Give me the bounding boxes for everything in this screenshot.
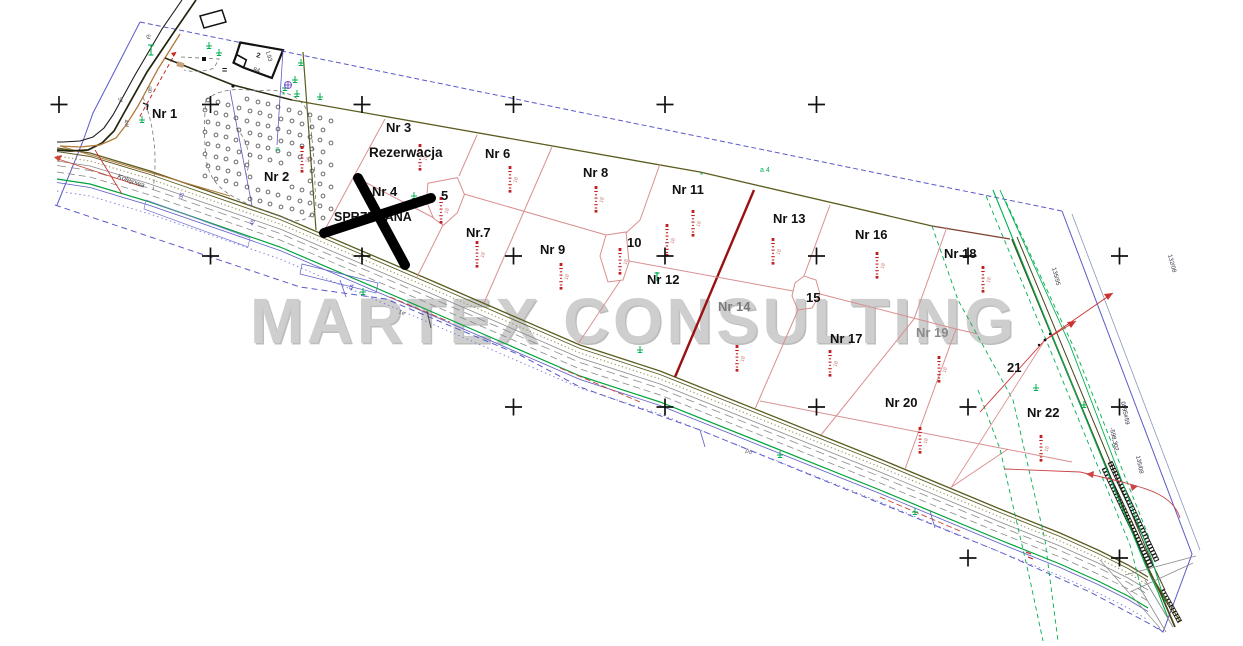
svg-text:Nr 20: Nr 20	[885, 395, 918, 410]
svg-text:15: 15	[806, 290, 820, 305]
svg-text:Nr 12: Nr 12	[647, 272, 680, 287]
svg-text:Nr 14: Nr 14	[718, 299, 751, 314]
svg-text:*: *	[282, 91, 285, 100]
svg-text:Rezerwacja: Rezerwacja	[369, 145, 443, 160]
svg-text:Nr 8: Nr 8	[583, 165, 608, 180]
svg-text:Nr 6: Nr 6	[485, 146, 510, 161]
svg-text:=: =	[222, 65, 227, 75]
svg-text:Nr 4: Nr 4	[372, 184, 398, 199]
svg-text:Nr 2: Nr 2	[264, 169, 289, 184]
svg-text:Nr 13: Nr 13	[773, 211, 806, 226]
svg-text:Nr 19: Nr 19	[916, 325, 949, 340]
svg-text:Nr 18: Nr 18	[944, 246, 977, 261]
svg-text:a 4: a 4	[760, 167, 770, 174]
svg-text:Nr 1: Nr 1	[152, 106, 177, 121]
svg-text:Nr 11: Nr 11	[672, 182, 704, 197]
svg-text:Nr.7: Nr.7	[466, 225, 491, 240]
svg-text:Nr 9: Nr 9	[540, 242, 565, 257]
svg-text:10: 10	[627, 235, 641, 250]
svg-text:*: *	[700, 171, 703, 180]
svg-text:Nr 3: Nr 3	[386, 120, 411, 135]
svg-text:Nr 22: Nr 22	[1027, 405, 1060, 420]
svg-text:≡: ≡	[275, 145, 280, 154]
svg-text:21: 21	[1007, 360, 1021, 375]
svg-text:Nr 16: Nr 16	[855, 227, 888, 242]
svg-text:Nr 17: Nr 17	[830, 331, 863, 346]
svg-text:5: 5	[441, 188, 448, 203]
